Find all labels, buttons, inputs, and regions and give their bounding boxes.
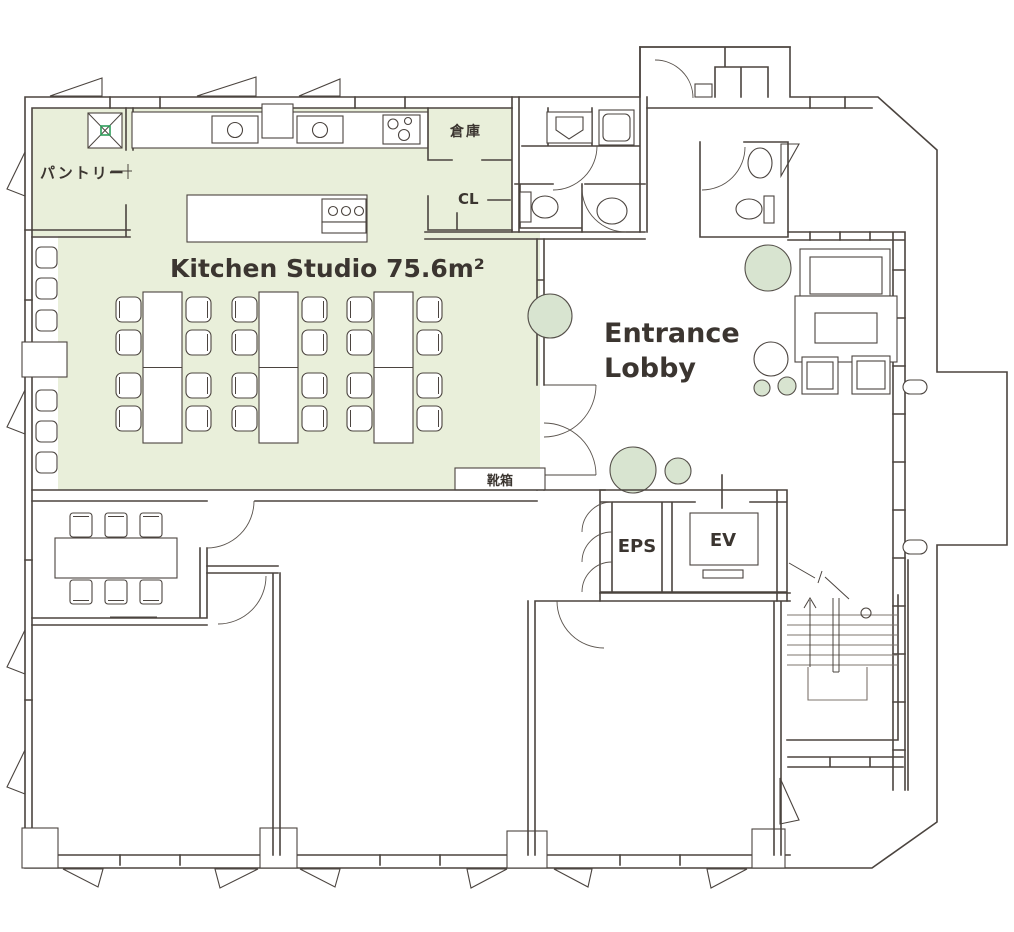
eps-label: EPS [618,536,656,557]
toilet-bowl [532,196,558,218]
entrance-lobby-label-line1: Entrance [604,318,740,349]
storage-label: 倉庫 [449,123,482,140]
toilet-tank [764,196,774,223]
tree [665,458,691,484]
elevator-label: EV [710,530,736,551]
closet-label: CL [458,190,479,208]
lobby-sofa [795,296,897,362]
meeting-table [55,538,177,578]
stone-table [754,342,788,376]
exterior-walls [25,47,1007,868]
shrub [778,377,796,395]
toilet-bowl [736,199,762,219]
lobby-bench [800,249,890,296]
kitchen-studio-label: Kitchen Studio 75.6m² [170,254,485,283]
entrance-lobby-label-line2: Lobby [604,353,696,384]
floor-plan: パントリー 倉庫 CL Kitchen Studio 75.6m² Entran… [0,0,1014,932]
sink-unit [297,116,343,143]
dining-tables [116,292,442,443]
tree [745,245,791,291]
wash-basin [748,148,772,178]
tree [610,447,656,493]
sink-unit [212,116,258,143]
shrub [754,380,770,396]
tree [528,294,572,338]
floor-plan-svg: パントリー 倉庫 CL Kitchen Studio 75.6m² Entran… [0,0,1014,932]
pantry-label: パントリー [40,164,126,182]
door-pull [903,540,927,554]
door-pull [903,380,927,394]
round-basin [597,198,627,224]
toilet-tank [520,192,531,222]
shoe-cabinet-label: 靴箱 [487,473,513,489]
lobby-chair [852,356,890,394]
